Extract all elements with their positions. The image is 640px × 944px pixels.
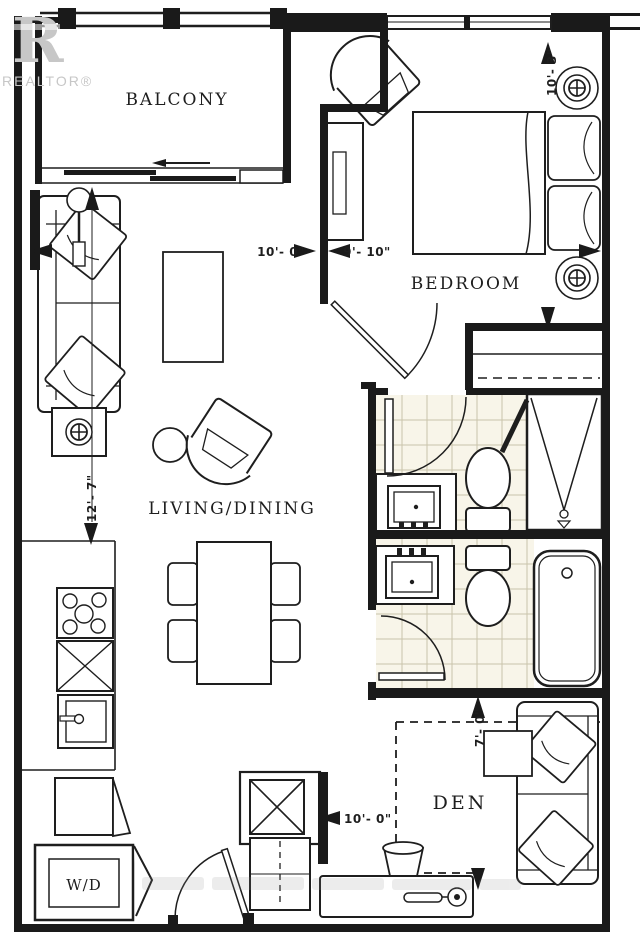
realtor-logo: R REALTOR® [2, 4, 93, 89]
side-table [52, 408, 106, 456]
realtor-logo-letter: R [12, 4, 64, 77]
bedroom-window [387, 15, 551, 30]
coffee-table [163, 252, 223, 362]
tv-console [326, 123, 363, 240]
living-sofa [38, 196, 127, 417]
floorplan-page: 12'- 7" 10'- 0" 9'- 10" 10'- 3" 7'- 0" 1… [0, 0, 640, 944]
dining-table-set [168, 542, 300, 684]
pillow [548, 186, 600, 250]
dim-living-width: 10'- 0" [257, 245, 305, 259]
ceiling-light-icon [556, 257, 598, 299]
bed [413, 112, 600, 254]
stove [57, 588, 113, 638]
pantry-door [55, 778, 130, 836]
dim-bedroom-width: 9'- 10" [343, 245, 391, 259]
vanity-sink-2 [376, 546, 454, 604]
bedroom-armchair [316, 21, 424, 129]
dining-chair [270, 563, 300, 605]
dim-den-depth: 7'- 0" [473, 708, 487, 747]
laundry-label: W/D [66, 876, 102, 894]
realtor-wordmark: REALTOR® [2, 73, 93, 89]
balcony-label: BALCONY [125, 90, 228, 110]
bedroom-door [331, 301, 437, 378]
dim-living-depth: 12'- 7" [85, 474, 99, 522]
dining-chair [270, 620, 300, 662]
pillow [548, 116, 600, 180]
den-sofa [517, 702, 598, 886]
den-label: DEN [433, 792, 488, 814]
slide-arrow-icon [152, 159, 166, 167]
toilet-1 [466, 448, 510, 532]
round-table [153, 428, 187, 462]
sliding-door [42, 159, 283, 183]
living-armchair [173, 395, 276, 498]
floorplan-drawing: 12'- 7" 10'- 0" 9'- 10" 10'- 3" 7'- 0" 1… [0, 0, 640, 944]
dining-chair [168, 563, 198, 605]
den-table [484, 731, 532, 776]
kitchen-sink [58, 695, 113, 748]
dim-entry-width: 10'- 0" [344, 812, 392, 826]
toilet-2 [466, 546, 510, 626]
ceiling-light-icon [556, 67, 598, 109]
dishwasher [57, 641, 113, 691]
bedroom-label: BEDROOM [411, 274, 522, 294]
bathtub [534, 551, 600, 686]
living-dining-label: LIVING/DINING [148, 499, 316, 519]
stool [383, 842, 423, 876]
dining-chair [168, 620, 198, 662]
dim-bedroom-depth: 10'- 3" [545, 48, 559, 96]
vanity-sink-1 [376, 474, 456, 532]
dining-table [197, 542, 271, 684]
